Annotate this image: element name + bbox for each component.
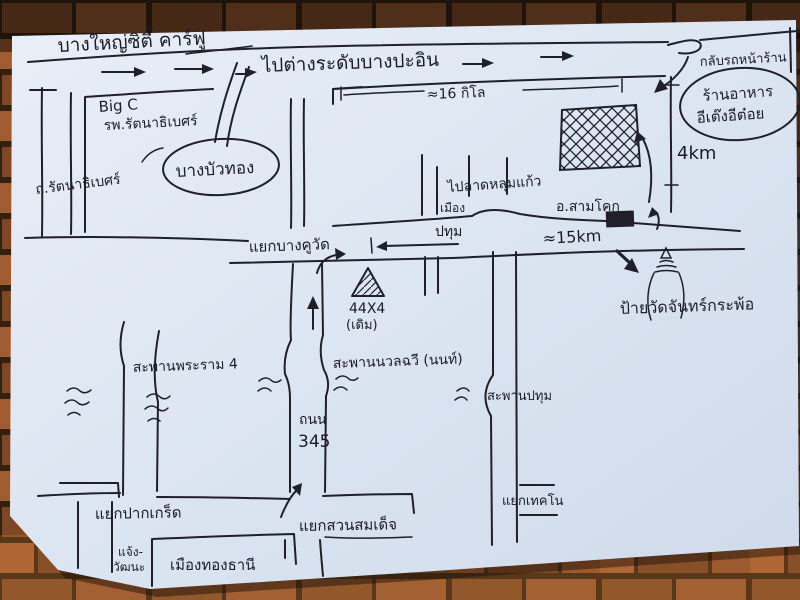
bang-khu-wat-label: แยกบางคูวัด	[249, 235, 331, 256]
paper-right-road-edge	[790, 28, 791, 72]
landmark-44x4-note: (เดิม)	[346, 318, 378, 333]
suan-somdet-label: แยกสวนสมเด็จ	[299, 514, 397, 535]
map-canvas: บางใหญ่ซิตี้ คาร์ฟู ไปต่างระดับบางปะอิน …	[0, 0, 800, 600]
pathum-label: ปทุม	[435, 224, 462, 240]
distance-15km: ≈15km	[542, 226, 602, 248]
landmark-44x4-label: 44X4	[349, 301, 385, 317]
road-345-number: 345	[298, 432, 330, 452]
pak-kret-label: แยกปากเกร็ด	[95, 502, 182, 523]
techno-label: แยกเทคโน	[502, 493, 564, 509]
pathum-bridge-label: สะพานปทุม	[487, 389, 552, 404]
crosshatch-building	[560, 105, 640, 170]
road-345-word: ถนน	[299, 412, 327, 428]
road-4km	[671, 77, 672, 212]
mueang-label: เมือง	[440, 201, 465, 215]
mueang-thong-label: เมืองทองธานี	[170, 556, 255, 574]
big-c-label: Big C	[98, 95, 138, 116]
chaeng-watthana-line1: แจ้ง-	[118, 545, 143, 559]
distance-4km: 4km	[677, 143, 716, 164]
chaeng-watthana-line2: วัฒนะ	[113, 560, 145, 574]
bang-bua-thong-label: บางบัวทอง	[175, 158, 255, 182]
distance-16km: ≈16 กิโล	[427, 84, 486, 103]
photo-of-hand-drawn-map: บางใหญ่ซิตี้ คาร์ฟู ไปต่างระดับบางปะอิน …	[0, 0, 800, 600]
sam-khok-label: อ.สามโคก	[556, 198, 620, 215]
